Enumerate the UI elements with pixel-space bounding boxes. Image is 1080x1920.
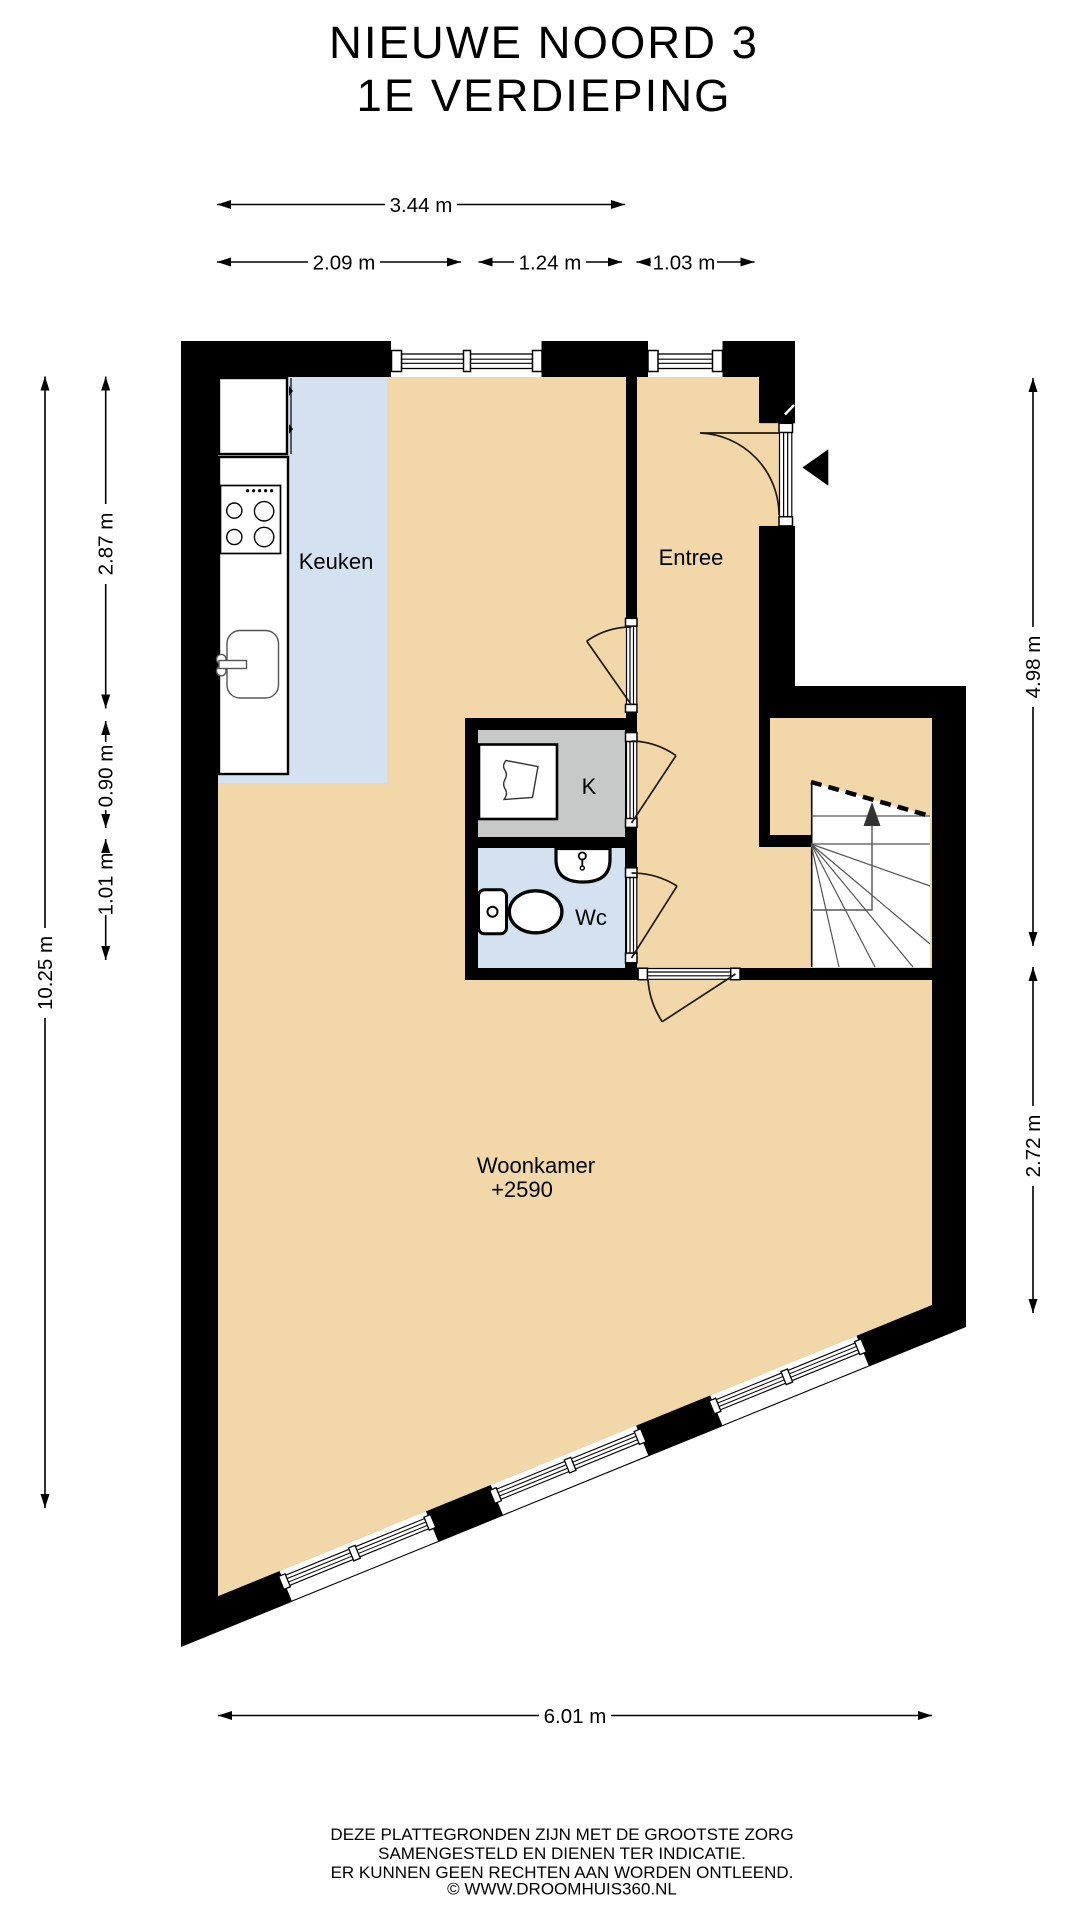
svg-text:DEZE PLATTEGRONDEN ZIJN MET DE: DEZE PLATTEGRONDEN ZIJN MET DE GROOTSTE … [330,1825,793,1844]
svg-text:+2590: +2590 [491,1177,553,1202]
svg-text:Entree: Entree [659,545,724,570]
svg-text:0.90 m: 0.90 m [95,745,118,808]
svg-text:NIEUWE NOORD 3: NIEUWE NOORD 3 [329,17,759,68]
svg-text:Woonkamer: Woonkamer [477,1153,595,1178]
svg-text:SAMENGESTELD EN DIENEN TER IND: SAMENGESTELD EN DIENEN TER INDICATIE. [378,1844,746,1863]
svg-text:Wc: Wc [575,905,607,930]
svg-text:K: K [582,774,597,799]
svg-text:2.09 m: 2.09 m [313,252,376,275]
svg-text:1.24 m: 1.24 m [519,252,582,275]
svg-text:1.03 m: 1.03 m [653,252,716,275]
svg-text:1.01 m: 1.01 m [95,853,118,916]
svg-text:4.98 m: 4.98 m [1022,636,1045,699]
svg-text:Keuken: Keuken [299,549,374,574]
svg-text:10.25 m: 10.25 m [34,936,57,1010]
svg-text:1E VERDIEPING: 1E VERDIEPING [357,70,732,121]
svg-text:© WWW.DROOMHUIS360.NL: © WWW.DROOMHUIS360.NL [447,1880,677,1899]
svg-text:2.87 m: 2.87 m [95,513,118,576]
svg-text:3.44 m: 3.44 m [390,194,453,217]
svg-text:6.01 m: 6.01 m [544,1705,607,1728]
svg-text:2.72 m: 2.72 m [1022,1115,1045,1178]
